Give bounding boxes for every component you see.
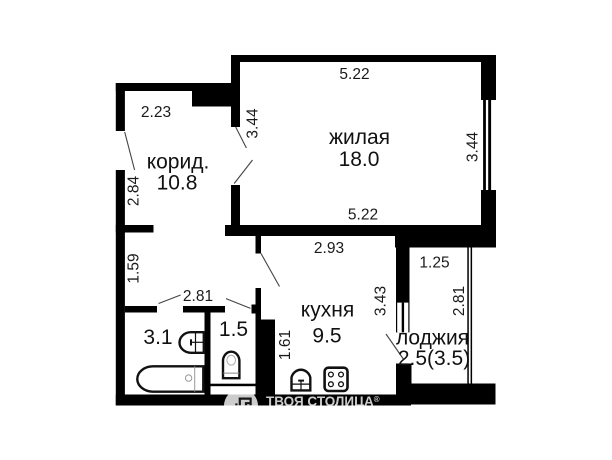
svg-text:5.22: 5.22 bbox=[348, 207, 378, 224]
svg-text:1.25: 1.25 bbox=[419, 255, 449, 272]
svg-text:10.8: 10.8 bbox=[157, 172, 198, 195]
svg-text:кухня: кухня bbox=[301, 299, 354, 322]
svg-text:3.43: 3.43 bbox=[373, 286, 390, 316]
svg-text:2.5(3.5): 2.5(3.5) bbox=[398, 347, 470, 370]
svg-text:1.61: 1.61 bbox=[277, 330, 294, 360]
svg-text:5.22: 5.22 bbox=[339, 66, 369, 83]
svg-text:2.81: 2.81 bbox=[451, 286, 468, 316]
svg-text:2.84: 2.84 bbox=[126, 176, 143, 207]
svg-text:2.93: 2.93 bbox=[314, 240, 344, 257]
svg-text:3.44: 3.44 bbox=[245, 108, 262, 139]
svg-text:3.1: 3.1 bbox=[143, 326, 172, 349]
svg-text:9.5: 9.5 bbox=[312, 325, 341, 348]
svg-text:1.5: 1.5 bbox=[219, 318, 248, 341]
svg-text:2.23: 2.23 bbox=[141, 104, 171, 121]
svg-text:корид.: корид. bbox=[147, 151, 210, 174]
svg-text:3.44: 3.44 bbox=[465, 132, 482, 163]
svg-text:1.59: 1.59 bbox=[126, 253, 143, 283]
svg-text:жилая: жилая bbox=[329, 126, 390, 149]
svg-text:18.0: 18.0 bbox=[339, 148, 380, 171]
svg-text:2.81: 2.81 bbox=[183, 288, 213, 305]
svg-text:ТВОЯ СТОЛИЦА®: ТВОЯ СТОЛИЦА® bbox=[266, 394, 380, 409]
